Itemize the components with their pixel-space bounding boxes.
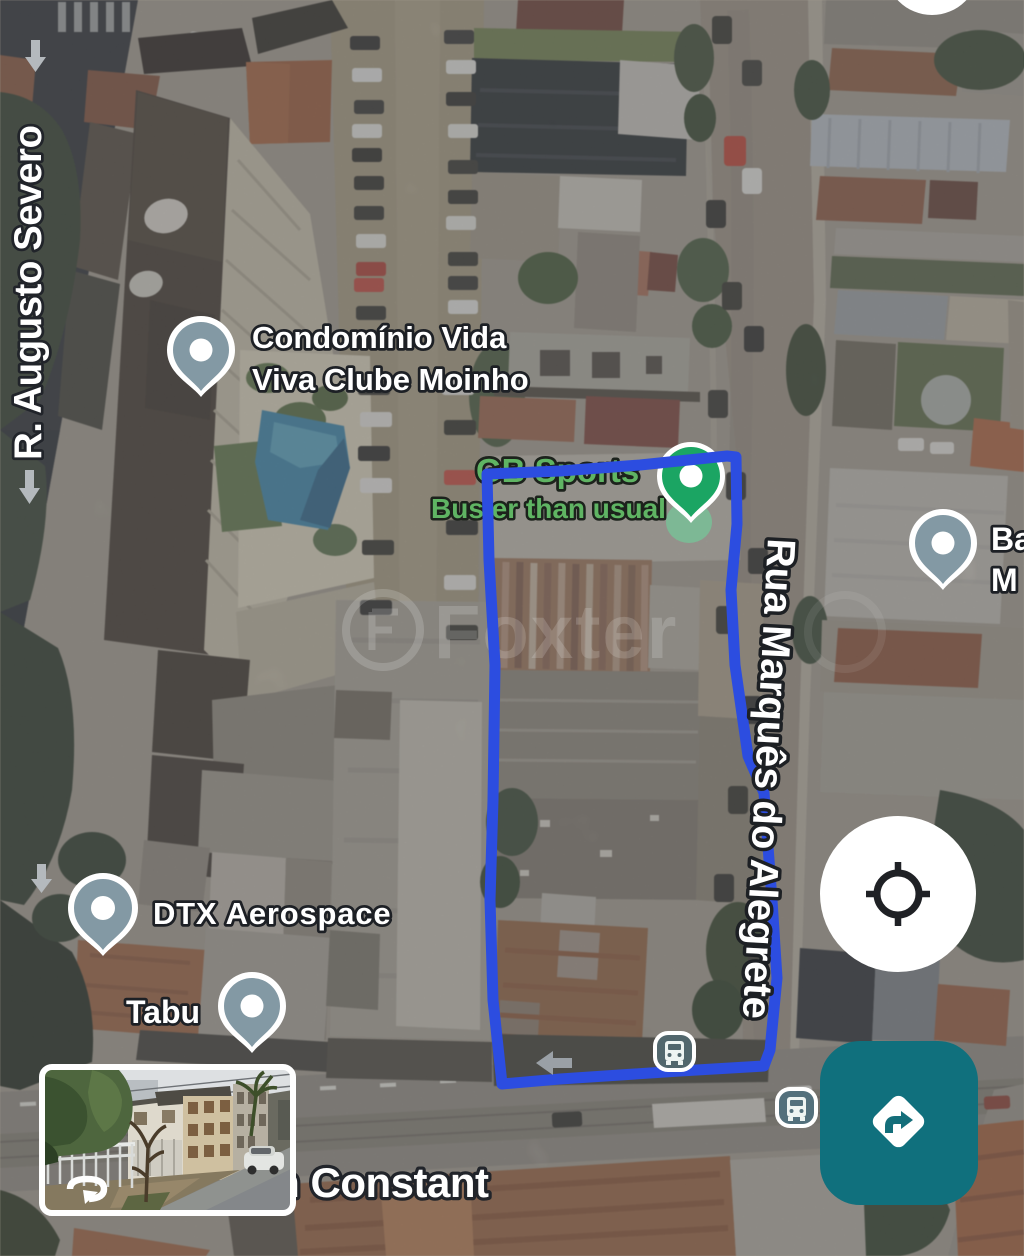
svg-text:Viva Clube Moinho: Viva Clube Moinho <box>252 362 529 397</box>
svg-text:Tabu: Tabu <box>126 994 200 1030</box>
svg-text:in Constant: in Constant <box>263 1159 489 1206</box>
svg-text:Condomínio Vida: Condomínio Vida <box>252 320 507 355</box>
svg-text:Busier than usual: Busier than usual <box>431 493 666 524</box>
svg-text:Foxter: Foxter <box>434 590 678 675</box>
svg-text:Ba: Ba <box>991 521 1024 557</box>
svg-text:M: M <box>991 562 1018 598</box>
svg-text:DTX Aerospace: DTX Aerospace <box>153 896 391 931</box>
svg-text:R. Augusto Severo: R. Augusto Severo <box>7 126 50 461</box>
